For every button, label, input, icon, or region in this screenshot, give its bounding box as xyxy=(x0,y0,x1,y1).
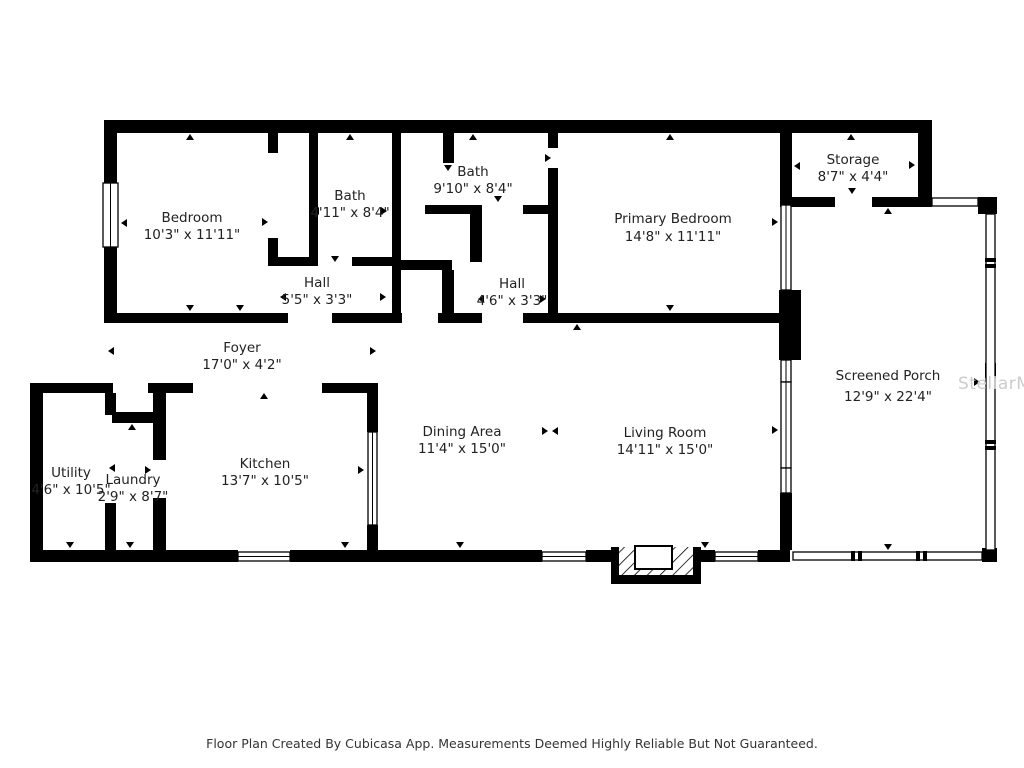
room-dims: 2'9" x 8'7" xyxy=(98,489,169,505)
room-label-bath-2: Bath 9'10" x 8'4" xyxy=(433,164,512,197)
door-marker xyxy=(772,426,778,434)
wall xyxy=(105,393,116,415)
room-dims: 11'4" x 15'0" xyxy=(418,441,506,457)
screen-divider xyxy=(923,551,927,561)
wall xyxy=(872,197,932,207)
fireplace xyxy=(611,546,701,584)
door-marker xyxy=(666,134,674,140)
screen-divider xyxy=(985,258,996,262)
door-marker xyxy=(794,162,800,170)
door-marker xyxy=(545,154,551,162)
screen-divider xyxy=(985,264,996,268)
room-name: Screened Porch xyxy=(836,368,941,384)
wall xyxy=(309,133,318,266)
door-marker xyxy=(573,324,581,330)
screen-divider xyxy=(858,551,862,561)
room-name: Bedroom xyxy=(161,210,222,226)
room-label-hall-2: Hall 4'6" x 3'3" xyxy=(477,276,548,309)
room-name: Primary Bedroom xyxy=(614,211,732,227)
stellar-mls-watermark: StellarMLS xyxy=(958,374,1024,394)
wall xyxy=(442,270,454,313)
room-name: Hall xyxy=(304,275,330,291)
room-name: Storage xyxy=(827,152,880,168)
door-marker xyxy=(121,219,127,227)
footer-disclaimer: Floor Plan Created By Cubicasa App. Meas… xyxy=(206,736,818,751)
door-marker xyxy=(380,293,386,301)
room-label-storage: Storage 8'7" x 4'4" xyxy=(818,152,889,185)
door-marker xyxy=(909,161,915,169)
door-marker xyxy=(469,134,477,140)
door-marker xyxy=(847,134,855,140)
wall xyxy=(104,120,932,133)
door-marker xyxy=(884,208,892,214)
screen-dividers xyxy=(851,258,996,561)
window xyxy=(793,552,982,560)
wall xyxy=(104,313,288,323)
door-marker xyxy=(444,165,452,171)
wall xyxy=(918,120,932,207)
wall xyxy=(332,313,402,323)
door-marker xyxy=(772,218,778,226)
door-marker xyxy=(341,542,349,548)
door-marker xyxy=(666,305,674,311)
walls xyxy=(30,120,997,562)
room-name: Kitchen xyxy=(240,456,291,472)
room-name: Utility xyxy=(51,465,91,481)
door-marker xyxy=(262,218,268,226)
wall xyxy=(700,550,715,562)
floorplan-canvas: Bedroom 10'3" x 11'11" Bath 4'11" x 8'4"… xyxy=(0,0,1024,768)
room-label-hall-1: Hall 5'5" x 3'3" xyxy=(282,275,353,308)
wall xyxy=(367,383,378,432)
door-marker xyxy=(884,544,892,550)
door-markers xyxy=(66,134,980,550)
door-marker xyxy=(456,542,464,548)
wall xyxy=(30,383,43,562)
door-marker xyxy=(109,464,115,472)
door-marker xyxy=(128,424,136,430)
room-label-laundry: Laundry 2'9" x 8'7" xyxy=(98,472,169,505)
wall xyxy=(112,412,154,423)
screen-divider xyxy=(916,551,920,561)
room-label-kitchen: Kitchen 13'7" x 10'5" xyxy=(221,456,309,489)
wall xyxy=(470,205,482,262)
screen-divider xyxy=(985,440,996,444)
room-label-foyer: Foyer 17'0" x 4'2" xyxy=(202,340,281,373)
door-marker xyxy=(542,427,548,435)
wall xyxy=(978,197,997,214)
wall xyxy=(153,383,166,460)
wall xyxy=(268,257,318,266)
room-dims: 13'7" x 10'5" xyxy=(221,473,309,489)
wall xyxy=(780,133,792,205)
wall xyxy=(30,550,238,562)
door-marker xyxy=(186,134,194,140)
wall xyxy=(367,525,378,550)
door-marker xyxy=(370,347,376,355)
room-label-bath-1: Bath 4'11" x 8'4" xyxy=(310,188,389,221)
door-marker xyxy=(701,542,709,548)
fireplace-wall-bottom xyxy=(611,575,701,584)
screen-divider xyxy=(851,551,855,561)
door-marker xyxy=(346,134,354,140)
wall xyxy=(153,498,166,550)
room-dims: 14'8" x 11'11" xyxy=(625,229,722,245)
door-marker xyxy=(186,305,194,311)
room-dims: 9'10" x 8'4" xyxy=(433,181,512,197)
wall xyxy=(105,503,116,550)
wall xyxy=(352,257,399,266)
door-marker xyxy=(331,256,339,262)
wall xyxy=(523,313,784,323)
door-marker xyxy=(260,393,268,399)
wall xyxy=(780,493,792,550)
room-dims: 17'0" x 4'2" xyxy=(202,357,281,373)
wall xyxy=(779,290,801,360)
room-label-screened-porch: Screened Porch 12'9" x 22'4" xyxy=(836,368,941,405)
wall xyxy=(399,260,452,270)
room-dims: 4'6" x 3'3" xyxy=(477,293,548,309)
room-label-living-room: Living Room 14'11" x 15'0" xyxy=(617,425,714,458)
room-dims: 8'7" x 4'4" xyxy=(818,169,889,185)
wall xyxy=(548,168,558,313)
room-dims: 12'9" x 22'4" xyxy=(844,389,932,405)
wall xyxy=(586,550,613,562)
room-name: Dining Area xyxy=(423,424,502,440)
window xyxy=(932,198,978,206)
wall xyxy=(268,133,278,153)
wall xyxy=(438,313,482,323)
room-name: Bath xyxy=(334,188,365,204)
screen-divider xyxy=(985,446,996,450)
floorplan-page: { "title": "Floor Plan", "rooms": [ {"na… xyxy=(0,0,1024,768)
wall xyxy=(425,205,473,214)
room-label-bedroom: Bedroom 10'3" x 11'11" xyxy=(144,210,241,243)
room-name: Bath xyxy=(457,164,488,180)
door-marker xyxy=(552,427,558,435)
room-dims: 10'3" x 11'11" xyxy=(144,227,241,243)
room-name: Living Room xyxy=(624,425,707,441)
door-marker xyxy=(108,347,114,355)
room-dims: 5'5" x 3'3" xyxy=(282,292,353,308)
wall xyxy=(443,133,454,163)
door-marker xyxy=(236,305,244,311)
room-dims: 14'11" x 15'0" xyxy=(617,442,714,458)
door-marker xyxy=(848,188,856,194)
wall xyxy=(523,205,548,214)
room-label-dining-area: Dining Area 11'4" x 15'0" xyxy=(418,424,506,457)
room-name: Laundry xyxy=(105,472,160,488)
room-dims: 4'11" x 8'4" xyxy=(310,205,389,221)
door-marker xyxy=(66,542,74,548)
wall xyxy=(30,383,113,393)
room-name: Hall xyxy=(499,276,525,292)
room-label-primary-bedroom: Primary Bedroom 14'8" x 11'11" xyxy=(614,211,732,245)
fireplace-firebox xyxy=(635,546,672,569)
wall xyxy=(290,550,542,562)
door-marker xyxy=(358,466,364,474)
wall xyxy=(548,133,558,148)
room-name: Foyer xyxy=(223,340,261,356)
wall xyxy=(392,133,401,313)
wall xyxy=(758,550,790,562)
door-marker xyxy=(126,542,134,548)
